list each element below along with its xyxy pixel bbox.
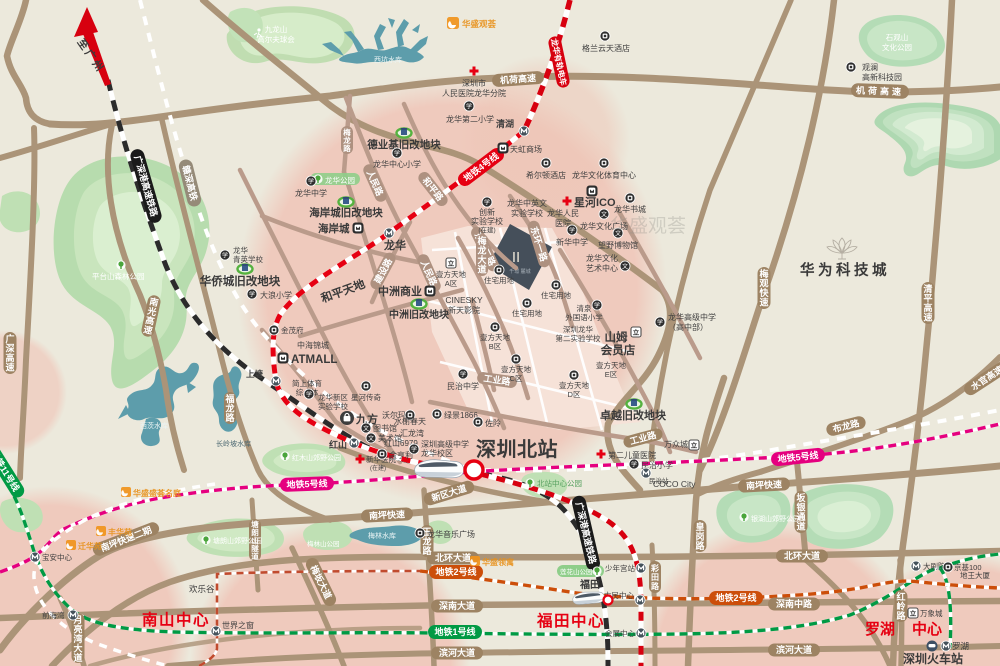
svg-text:龙华中英文: 龙华中英文: [507, 198, 547, 208]
svg-text:地铁2号线: 地铁2号线: [435, 566, 476, 577]
svg-text:清湖: 清湖: [496, 118, 514, 129]
svg-text:平台山森林公园: 平台山森林公园: [92, 271, 145, 281]
svg-text:深圳市: 深圳市: [462, 78, 486, 88]
svg-text:清泉: 清泉: [577, 303, 592, 313]
svg-text:深圳高级中学: 深圳高级中学: [421, 439, 469, 449]
svg-text:华为科技城: 华为科技城: [800, 261, 890, 279]
svg-text:希尔顿酒店: 希尔顿酒店: [526, 170, 566, 180]
svg-text:会员店: 会员店: [600, 343, 636, 357]
svg-text:龙华文化: 龙华文化: [586, 253, 618, 263]
svg-text:前海湾: 前海湾: [42, 610, 65, 620]
svg-text:高新科技园: 高新科技园: [862, 72, 902, 82]
svg-text:ATMALL: ATMALL: [291, 354, 337, 366]
svg-text:（高中部）: （高中部）: [668, 322, 708, 332]
svg-text:新天影院: 新天影院: [448, 305, 480, 315]
svg-text:北环大道: 北环大道: [435, 552, 471, 563]
svg-text:梅观快速: 梅观快速: [759, 268, 769, 308]
svg-text:水榭春天: 水榭春天: [394, 416, 426, 426]
svg-text:壹方天地: 壹方天地: [596, 360, 626, 370]
svg-text:华盛领寓: 华盛领寓: [482, 557, 514, 567]
svg-text:梅林山公园: 梅林山公园: [307, 539, 340, 548]
svg-text:住宅用地: 住宅用地: [484, 275, 514, 285]
svg-text:南坪快速: 南坪快速: [746, 478, 783, 491]
svg-text:住宅用地: 住宅用地: [541, 290, 571, 300]
svg-text:E区: E区: [605, 370, 618, 379]
svg-text:千璟 麓城: 千璟 麓城: [509, 268, 530, 275]
svg-text:福田中心: 福田中心: [536, 611, 605, 630]
svg-text:(在建): (在建): [370, 464, 386, 472]
svg-text:银湖山郊野公园: 银湖山郊野公园: [751, 514, 800, 523]
svg-text:深圳龙华: 深圳龙华: [563, 324, 593, 334]
svg-text:龙华: 龙华: [383, 238, 406, 252]
svg-text:罗湖: 罗湖: [952, 641, 969, 651]
svg-text:机荷高速: 机荷高速: [856, 84, 904, 97]
svg-text:梅林水库: 梅林水库: [368, 531, 396, 540]
svg-text:中洲商业: 中洲商业: [378, 284, 422, 298]
svg-text:B区: B区: [489, 342, 502, 351]
svg-text:地铁5号线: 地铁5号线: [286, 477, 327, 489]
svg-text:海岸城旧改地块: 海岸城旧改地块: [309, 206, 383, 219]
svg-text:民治中学: 民治中学: [447, 381, 479, 391]
svg-text:龙华第二小学: 龙华第二小学: [446, 114, 494, 124]
svg-text:南坪快速: 南坪快速: [369, 508, 406, 521]
svg-text:宝安中心: 宝安中心: [42, 552, 72, 562]
svg-text:塘朗山郊野公园: 塘朗山郊野公园: [213, 536, 262, 545]
svg-text:实验学校: 实验学校: [471, 216, 503, 226]
svg-text:实验学校: 实验学校: [318, 401, 348, 411]
svg-text:深南中路: 深南中路: [776, 598, 813, 609]
svg-text:深南大道: 深南大道: [439, 600, 475, 611]
svg-text:西坑水库: 西坑水库: [374, 55, 402, 64]
svg-text:滨河大道: 滨河大道: [439, 647, 475, 658]
svg-text:创新: 创新: [479, 207, 495, 217]
svg-text:龙华中学: 龙华中学: [295, 188, 327, 198]
svg-text:深圳火车站: 深圳火车站: [903, 651, 963, 666]
svg-text:观澜: 观澜: [862, 63, 878, 72]
svg-text:大浪小学: 大浪小学: [260, 290, 292, 300]
svg-text:上塘: 上塘: [246, 369, 264, 379]
svg-text:月亮湾大道: 月亮湾大道: [72, 615, 82, 663]
svg-text:北站中心公园: 北站中心公园: [537, 478, 582, 488]
svg-text:格兰云天酒店: 格兰云天酒店: [582, 43, 630, 53]
svg-text:西茨水库: 西茨水库: [140, 421, 168, 430]
svg-text:罗湖: 罗湖: [865, 621, 895, 638]
svg-text:龙华高级中学: 龙华高级中学: [668, 312, 716, 322]
svg-text:皇岗路: 皇岗路: [695, 521, 705, 551]
svg-text:华盛观荟: 华盛观荟: [462, 19, 497, 29]
svg-text:世界之窗: 世界之窗: [222, 620, 254, 630]
svg-text:壹方天地: 壹方天地: [559, 380, 589, 390]
svg-text:第二实验学校: 第二实验学校: [556, 333, 601, 343]
svg-text:彩田路: 彩田路: [650, 563, 660, 591]
svg-text:地铁2号线: 地铁2号线: [715, 592, 756, 603]
svg-text:龙华音乐广场: 龙华音乐广场: [427, 529, 475, 539]
svg-text:高尔夫球会: 高尔夫球会: [257, 34, 295, 44]
svg-text:福龙路: 福龙路: [224, 393, 235, 423]
svg-text:新华中学: 新华中学: [556, 237, 588, 247]
svg-text:滨河大道: 滨河大道: [776, 644, 812, 655]
svg-text:莲花山公园: 莲花山公园: [560, 567, 593, 576]
svg-text:华盛盛荟名庭: 华盛盛荟名庭: [133, 488, 182, 498]
svg-text:地铁1号线: 地铁1号线: [434, 626, 475, 637]
svg-text:青英学校: 青英学校: [233, 254, 263, 264]
svg-text:实验学校: 实验学校: [511, 208, 543, 218]
svg-text:文化公园: 文化公园: [882, 42, 912, 52]
svg-text:龙华文化体育中心: 龙华文化体育中心: [572, 170, 636, 180]
svg-text:星河传奇: 星河传奇: [351, 392, 381, 402]
svg-text:丰华苑: 丰华苑: [108, 527, 132, 537]
svg-text:红木山郊野公园: 红木山郊野公园: [292, 453, 341, 462]
svg-text:万象城: 万象城: [920, 608, 943, 618]
svg-text:龙华公园: 龙华公园: [325, 175, 355, 185]
svg-text:九龙山: 九龙山: [265, 24, 288, 34]
svg-text:福田: 福田: [579, 578, 600, 591]
svg-text:人民医院龙华分院: 人民医院龙华分院: [442, 88, 506, 98]
svg-text:地王大厦: 地王大厦: [960, 570, 990, 580]
svg-text:欢乐谷: 欢乐谷: [189, 584, 215, 594]
svg-text:北环大道: 北环大道: [784, 550, 820, 561]
svg-text:住宅用地: 住宅用地: [512, 308, 542, 318]
svg-text:中海锦城: 中海锦城: [297, 340, 329, 350]
svg-text:汇龙湾: 汇龙湾: [400, 428, 424, 438]
svg-text:C区: C区: [510, 374, 523, 383]
svg-text:D区: D区: [568, 390, 581, 399]
svg-text:COCO City: COCO City: [653, 479, 696, 489]
svg-text:红山: 红山: [329, 439, 347, 450]
svg-text:金茂府: 金茂府: [281, 325, 304, 335]
svg-text:望野博物馆: 望野博物馆: [598, 240, 638, 250]
svg-text:梅龙路: 梅龙路: [343, 127, 351, 153]
svg-text:艺术中心: 艺术中心: [586, 263, 618, 273]
svg-text:广深高速: 广深高速: [5, 333, 14, 373]
svg-text:壹方天地: 壹方天地: [501, 364, 531, 374]
svg-text:少年宫站: 少年宫站: [605, 563, 635, 573]
svg-text:石观山: 石观山: [886, 32, 909, 42]
svg-text:中心: 中心: [912, 620, 942, 638]
svg-text:长岭坡水库: 长岭坡水库: [216, 439, 251, 448]
svg-text:龙华校区: 龙华校区: [421, 448, 453, 458]
svg-text:南山中心: 南山中心: [142, 610, 210, 629]
svg-text:大剧院: 大剧院: [923, 561, 946, 571]
svg-text:深圳北站: 深圳北站: [476, 437, 558, 461]
svg-text:外国语小学: 外国语小学: [565, 312, 603, 322]
svg-text:龙华: 龙华: [233, 245, 248, 255]
svg-text:迁华苑: 迁华苑: [78, 541, 102, 551]
svg-text:佐阾: 佐阾: [485, 418, 501, 428]
svg-text:德业基旧改地块: 德业基旧改地块: [366, 138, 441, 151]
svg-text:第二儿童医院: 第二儿童医院: [608, 450, 656, 460]
svg-text:梅龙大道: 梅龙大道: [476, 235, 486, 275]
svg-text:壹方天地: 壹方天地: [436, 269, 466, 279]
svg-text:绿景1866: 绿景1866: [444, 411, 478, 420]
svg-text:中洲旧改地块: 中洲旧改地块: [389, 308, 450, 321]
svg-text:龙华新区: 龙华新区: [318, 392, 348, 402]
svg-text:会展中心: 会展中心: [605, 628, 635, 638]
svg-text:华盛观荟: 华盛观荟: [610, 215, 686, 237]
svg-text:万众城: 万众城: [664, 440, 688, 449]
svg-text:红岭路: 红岭路: [896, 591, 906, 621]
svg-text:A区: A区: [445, 279, 458, 288]
svg-text:龙华书城: 龙华书城: [614, 204, 646, 214]
svg-text:天虹商场: 天虹商场: [510, 144, 542, 154]
svg-text:华侨城旧改地块: 华侨城旧改地块: [200, 274, 281, 288]
svg-text:星河ICO: 星河ICO: [574, 195, 616, 209]
svg-text:海岸城: 海岸城: [318, 222, 350, 235]
svg-text:坂银通道: 坂银通道: [796, 492, 806, 532]
svg-text:简上体育: 简上体育: [292, 378, 322, 388]
svg-text:CINESKY: CINESKY: [445, 295, 483, 305]
svg-text:龙华中心小学: 龙华中心小学: [373, 159, 421, 169]
svg-text:(在建): (在建): [478, 225, 495, 234]
svg-text:卓越旧改地块: 卓越旧改地块: [600, 408, 667, 422]
svg-text:山姆: 山姆: [605, 330, 628, 344]
svg-text:龙华人民: 龙华人民: [547, 208, 579, 218]
svg-text:清平高速: 清平高速: [923, 283, 932, 323]
svg-text:壹方天地: 壹方天地: [480, 332, 510, 342]
